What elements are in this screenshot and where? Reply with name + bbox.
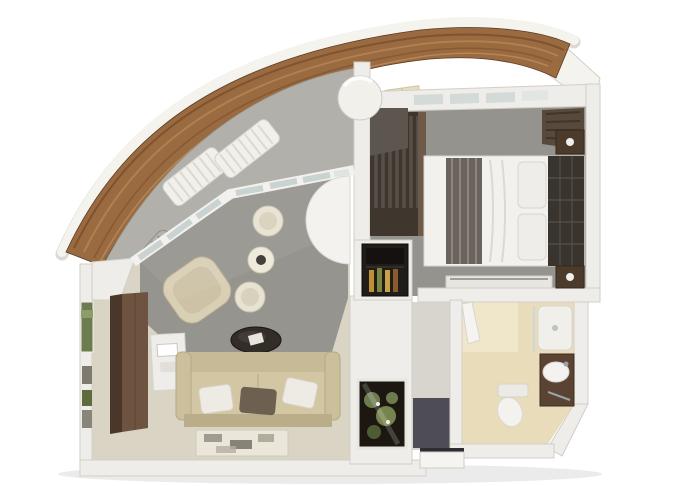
wall-bedroom-bathroom [418,288,600,302]
shower-drain [552,325,558,331]
nightstand-bottom [556,266,584,288]
left-window-leaf [81,310,93,318]
dining-chair-2-seat [241,288,259,306]
wall-bathroom-right [574,302,588,404]
sofa-pillow-white-1 [198,384,233,414]
wall-bathroom-left [450,300,462,450]
bottle-4 [393,269,398,292]
wall-art-3 [82,410,92,428]
wardrobe [110,292,148,434]
bottle-3 [385,270,390,292]
left-window-greenery [81,302,93,352]
wall-art-2 [82,390,92,406]
vanity [540,354,574,406]
dresser [446,276,552,288]
bed-pillow-2 [518,214,546,260]
cabinet-plant-3 [367,425,381,439]
wall-bedroom-right [586,84,600,298]
floor-plan-image [0,0,680,486]
entry-mat [413,398,450,448]
minibar-cabinet [362,244,408,296]
entry [420,448,464,468]
wall-art-1 [82,366,92,384]
balcony-dome-table [338,76,382,120]
sofa-arm-left [176,352,191,420]
rug [196,430,288,456]
nightstand-top [556,130,584,154]
bed-pillow-1 [518,162,546,208]
shower [534,306,572,352]
glass-display-cabinet [358,380,406,448]
sofa-arm-right [325,352,340,420]
toilet-tank [498,384,528,397]
sofa-pillow-dark [239,386,277,415]
sofa [176,352,340,427]
suite-floor-plan-svg [0,0,680,486]
faucet [564,362,569,367]
cabinet-plant-4 [386,392,398,404]
bottle-2 [377,268,382,292]
entry-door [420,452,464,468]
bed-headboard [548,156,584,266]
curtain-left [370,108,408,156]
coffee-table [231,327,281,353]
wall-bathroom-bottom [450,444,554,458]
bottle-1 [369,270,374,292]
bed [424,156,584,266]
